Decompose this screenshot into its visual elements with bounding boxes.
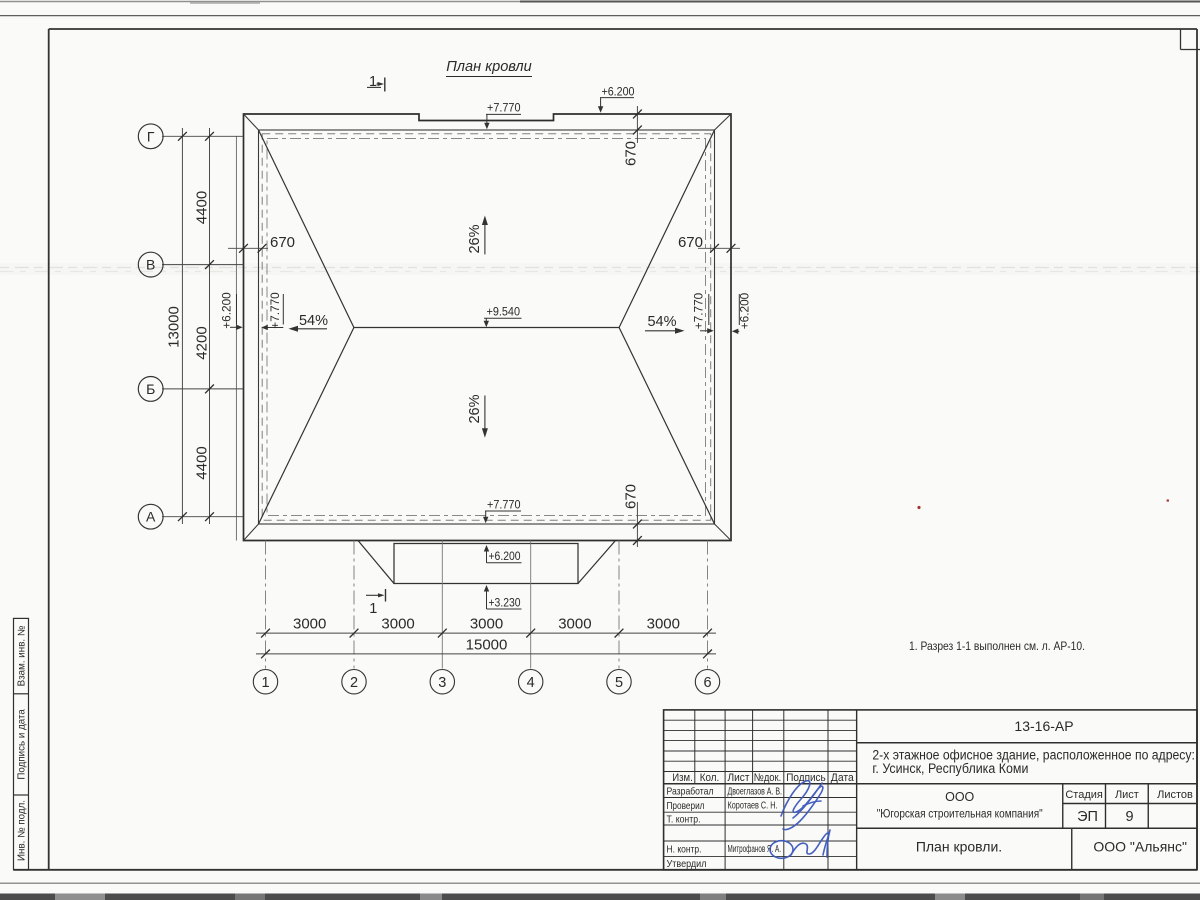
svg-text:Инв. № подл.: Инв. № подл. bbox=[16, 800, 27, 861]
svg-text:26%: 26% bbox=[467, 394, 483, 423]
svg-text:4: 4 bbox=[527, 675, 535, 691]
svg-text:3000: 3000 bbox=[381, 616, 414, 633]
svg-text:3000: 3000 bbox=[293, 616, 326, 633]
svg-text:3000: 3000 bbox=[558, 616, 591, 633]
svg-text:Б: Б bbox=[146, 381, 155, 397]
svg-text:Подпись: Подпись bbox=[786, 772, 826, 784]
svg-text:15000: 15000 bbox=[466, 637, 508, 654]
svg-text:Н. контр.: Н. контр. bbox=[667, 843, 702, 855]
svg-text:Стадия: Стадия bbox=[1065, 789, 1103, 801]
svg-text:ООО: ООО bbox=[945, 790, 974, 804]
svg-text:Листов: Листов bbox=[1157, 789, 1193, 801]
svg-text:13-16-АР: 13-16-АР bbox=[1014, 718, 1073, 734]
svg-text:+7.770: +7.770 bbox=[692, 292, 706, 329]
svg-text:1: 1 bbox=[261, 675, 269, 691]
svg-text:2-х этажное офисное здание, ра: 2-х этажное офисное здание, расположенно… bbox=[872, 747, 1195, 762]
svg-text:А: А bbox=[146, 509, 156, 525]
svg-text:План кровли.: План кровли. bbox=[916, 839, 1002, 855]
svg-text:670: 670 bbox=[270, 234, 295, 251]
svg-text:3000: 3000 bbox=[647, 616, 680, 633]
svg-text:+7.770: +7.770 bbox=[487, 101, 521, 115]
svg-text:+9.540: +9.540 bbox=[487, 304, 521, 318]
svg-text:Лист: Лист bbox=[728, 772, 750, 784]
svg-text:Изм.: Изм. bbox=[672, 772, 693, 784]
svg-text:Подпись и дата: Подпись и дата bbox=[16, 709, 27, 780]
svg-text:Митрофанов Я. А.: Митрофанов Я. А. bbox=[728, 843, 782, 855]
svg-text:ЭП: ЭП bbox=[1077, 809, 1098, 825]
svg-text:Дата: Дата bbox=[831, 772, 855, 784]
svg-text:Взам. инв. №: Взам. инв. № bbox=[16, 626, 27, 687]
svg-text:54%: 54% bbox=[299, 313, 328, 329]
svg-text:Утвердил: Утвердил bbox=[667, 858, 707, 870]
svg-text:В: В bbox=[146, 257, 155, 273]
svg-text:Г: Г bbox=[147, 128, 155, 144]
svg-text:Разработал: Разработал bbox=[667, 786, 714, 798]
svg-text:1: 1 bbox=[369, 601, 377, 617]
svg-text:4400: 4400 bbox=[194, 446, 211, 479]
svg-text:Коротаев С. Н.: Коротаев С. Н. bbox=[728, 801, 778, 812]
svg-text:4200: 4200 bbox=[194, 326, 211, 359]
svg-text:670: 670 bbox=[623, 141, 640, 166]
svg-text:Проверил: Проверил bbox=[667, 800, 705, 812]
svg-text:№док.: №док. bbox=[754, 772, 782, 784]
svg-text:5: 5 bbox=[615, 675, 623, 691]
svg-text:ООО "Альянс": ООО "Альянс" bbox=[1093, 839, 1187, 855]
svg-text:670: 670 bbox=[623, 484, 640, 509]
svg-text:Кол.: Кол. bbox=[700, 772, 720, 784]
svg-text:+6.200: +6.200 bbox=[220, 292, 234, 329]
svg-text:1. Разрез 1-1 выполнен см. л.: 1. Разрез 1-1 выполнен см. л. АР-10. bbox=[909, 639, 1085, 653]
svg-text:26%: 26% bbox=[467, 224, 483, 253]
svg-text:+6.200: +6.200 bbox=[602, 84, 635, 98]
svg-text:г. Усинск, Республика Коми: г. Усинск, Республика Коми bbox=[872, 761, 1028, 776]
svg-text:3: 3 bbox=[438, 675, 446, 691]
svg-text:Двоеглазов А. В.: Двоеглазов А. В. bbox=[728, 786, 783, 797]
svg-text:Лист: Лист bbox=[1115, 789, 1139, 801]
svg-text:9: 9 bbox=[1125, 809, 1133, 825]
svg-text:3000: 3000 bbox=[470, 616, 503, 633]
svg-text:13000: 13000 bbox=[166, 306, 183, 348]
svg-text:Т. контр.: Т. контр. bbox=[667, 813, 701, 825]
svg-text:+7.770: +7.770 bbox=[268, 292, 282, 329]
svg-text:+3.230: +3.230 bbox=[489, 595, 521, 609]
svg-text:6: 6 bbox=[703, 675, 711, 691]
svg-text:План кровли: План кровли bbox=[446, 58, 532, 75]
svg-text:2: 2 bbox=[350, 675, 358, 691]
svg-text:670: 670 bbox=[678, 234, 703, 251]
svg-text:+7.770: +7.770 bbox=[487, 497, 521, 511]
svg-text:54%: 54% bbox=[647, 314, 676, 330]
svg-text:4400: 4400 bbox=[194, 191, 211, 224]
svg-text:+6.200: +6.200 bbox=[489, 549, 521, 563]
svg-text:"Югорская строительная компани: "Югорская строительная компания" bbox=[877, 809, 1043, 821]
